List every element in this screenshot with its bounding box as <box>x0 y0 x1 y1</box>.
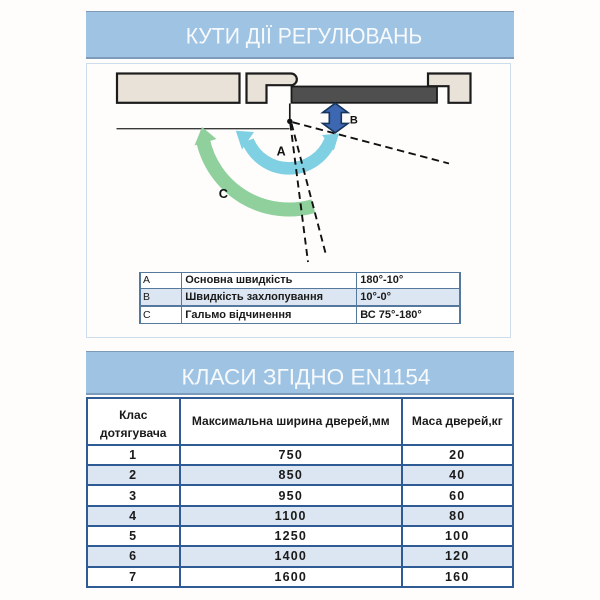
svg-text:КУТИ ДІЇ РЕГУЛЮВАНЬ: КУТИ ДІЇ РЕГУЛЮВАНЬ <box>186 23 423 48</box>
svg-text:КЛАСИ ЗГІДНО EN1154: КЛАСИ ЗГІДНО EN1154 <box>182 364 431 389</box>
svg-text:А: А <box>277 145 286 159</box>
svg-text:B: B <box>350 114 358 126</box>
svg-text:C: C <box>219 186 228 201</box>
